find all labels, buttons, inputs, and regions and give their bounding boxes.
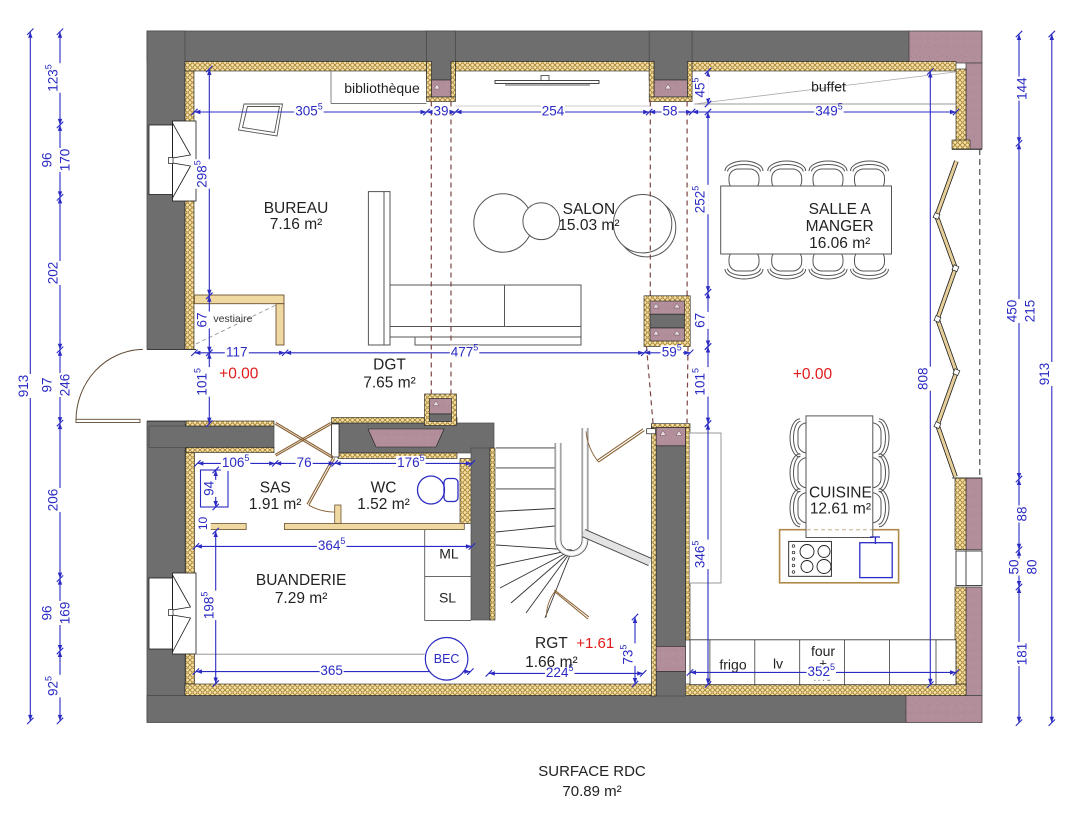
svg-text:7.65 m²: 7.65 m²	[363, 374, 416, 391]
svg-text:58: 58	[662, 104, 677, 119]
svg-text:202: 202	[46, 262, 61, 285]
svg-text:88: 88	[1015, 506, 1030, 521]
svg-text:80: 80	[1025, 559, 1040, 574]
svg-text:181: 181	[1015, 643, 1030, 666]
svg-text:SAS: SAS	[260, 479, 291, 496]
svg-text:+0.00: +0.00	[219, 365, 259, 382]
svg-text:frigo: frigo	[719, 657, 746, 673]
svg-text:SALLE A: SALLE A	[809, 201, 872, 218]
svg-text:16.06 m²: 16.06 m²	[809, 235, 870, 252]
svg-text:vestiaire: vestiaire	[213, 313, 252, 325]
svg-text:bibliothèque: bibliothèque	[344, 80, 420, 96]
svg-text:BUANDERIE: BUANDERIE	[256, 572, 346, 589]
svg-text:50: 50	[1007, 559, 1022, 574]
svg-text:WC: WC	[371, 479, 397, 496]
svg-text:BEC: BEC	[434, 652, 460, 666]
svg-text:215: 215	[1023, 300, 1038, 323]
svg-text:39: 39	[433, 104, 448, 119]
svg-text:buffet: buffet	[811, 79, 846, 95]
svg-text:117: 117	[226, 344, 248, 359]
svg-text:RGT: RGT	[535, 635, 568, 652]
svg-text:450: 450	[1005, 300, 1020, 323]
svg-text:170: 170	[58, 149, 73, 172]
svg-text:ML: ML	[439, 546, 459, 562]
svg-text:913: 913	[1037, 363, 1052, 386]
svg-text:+1.61: +1.61	[576, 635, 614, 652]
svg-text:97: 97	[40, 377, 55, 392]
svg-text:SL: SL	[439, 590, 456, 606]
svg-text:+0.00: +0.00	[793, 366, 833, 383]
svg-text:94: 94	[202, 480, 217, 496]
svg-text:lv: lv	[773, 656, 783, 672]
svg-text:365: 365	[320, 663, 343, 678]
svg-text:169: 169	[58, 602, 73, 625]
svg-text:96: 96	[40, 152, 55, 167]
svg-text:1.52 m²: 1.52 m²	[357, 496, 410, 513]
svg-text:1.66 m²: 1.66 m²	[525, 654, 578, 671]
svg-text:SALON: SALON	[563, 201, 616, 218]
svg-text:76: 76	[297, 455, 312, 470]
svg-text:12.61 m²: 12.61 m²	[810, 501, 871, 518]
svg-text:BUREAU: BUREAU	[264, 200, 329, 217]
svg-text:96: 96	[40, 605, 55, 620]
svg-text:1.91 m²: 1.91 m²	[249, 496, 302, 513]
svg-text:67: 67	[693, 313, 708, 328]
svg-text:SURFACE RDC: SURFACE RDC	[538, 763, 646, 780]
svg-text:CUISINE: CUISINE	[809, 485, 872, 502]
svg-text:10: 10	[196, 517, 210, 531]
svg-text:913: 913	[16, 375, 31, 398]
svg-text:144: 144	[1015, 77, 1030, 100]
svg-text:808: 808	[916, 367, 931, 390]
svg-text:67: 67	[195, 312, 210, 327]
svg-text:206: 206	[46, 489, 61, 512]
svg-text:246: 246	[58, 374, 73, 397]
svg-text:254: 254	[542, 104, 565, 119]
svg-text:70.89 m²: 70.89 m²	[562, 783, 621, 800]
svg-text:15.03 m²: 15.03 m²	[558, 217, 619, 234]
svg-text:MANGER: MANGER	[806, 218, 874, 235]
svg-text:7.29 m²: 7.29 m²	[275, 590, 328, 607]
svg-text:DGT: DGT	[373, 356, 406, 373]
svg-text:7.16 m²: 7.16 m²	[270, 216, 323, 233]
